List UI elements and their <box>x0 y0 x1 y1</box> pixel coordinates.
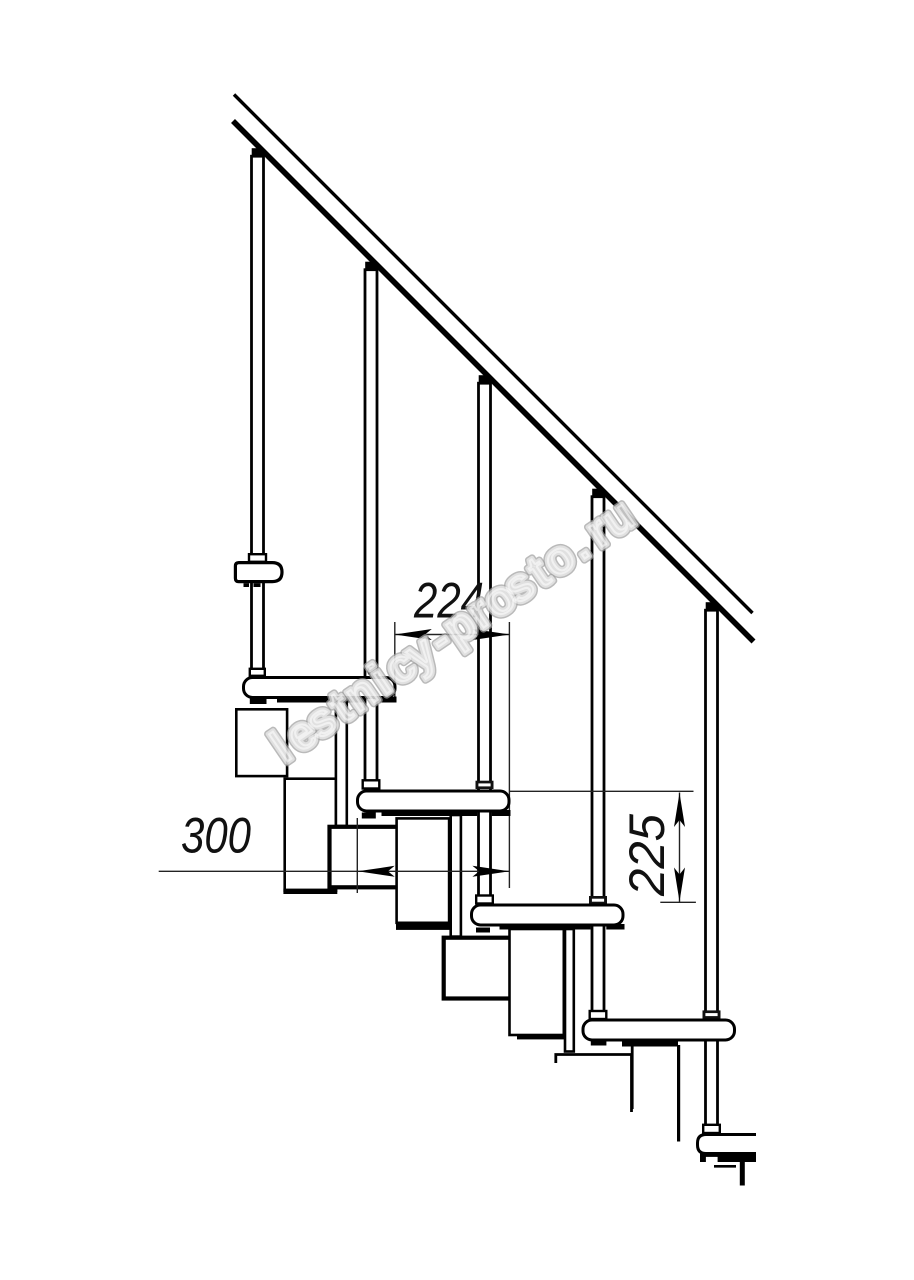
svg-text:300: 300 <box>181 807 251 863</box>
svg-text:225: 225 <box>619 814 675 897</box>
